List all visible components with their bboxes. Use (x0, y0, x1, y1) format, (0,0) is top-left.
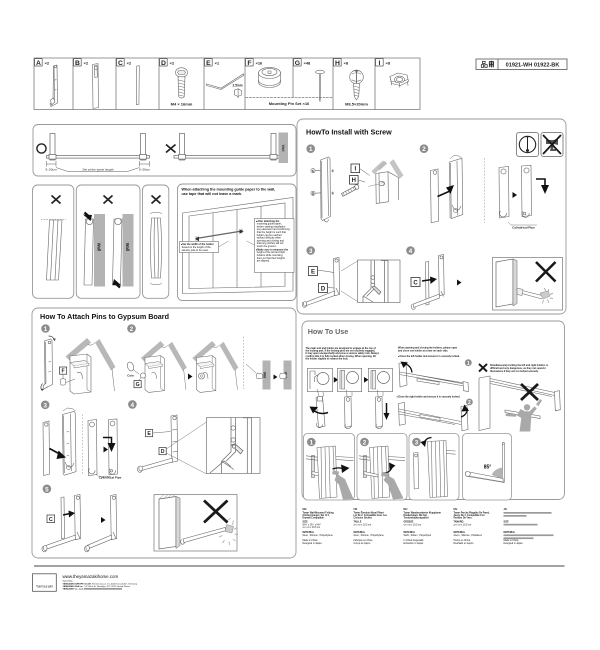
svg-text:MATERIAL: MATERIAL (354, 531, 366, 534)
svg-text:Steel , Silicone , Polyethylen: Steel , Silicone , Polyethylene (303, 534, 334, 537)
svg-text:ES/: ES/ (454, 509, 458, 511)
svg-text:01921-WH 01922-BK: 01921-WH 01922-BK (506, 63, 560, 69)
svg-text:www.theyamazakihome.com: www.theyamazakihome.com (63, 574, 119, 579)
svg-text:HowTo Install with Screw: HowTo Install with Screw (306, 128, 392, 137)
svg-text:Tower Wandmontierter Klappbare: Tower Wandmontierter Klappbarer (404, 511, 442, 514)
svg-text:2: 2 (422, 146, 426, 153)
svg-text:MATERIAL: MATERIAL (504, 531, 516, 534)
svg-text:×16: ×16 (256, 60, 264, 65)
svg-text:C: C (49, 517, 53, 523)
svg-text:C: C (118, 60, 123, 67)
svg-text:JA/: JA/ (504, 508, 508, 511)
svg-text:use tape that will not leave a: use tape that will not leave a mark. (182, 192, 243, 196)
svg-text:Designed in Japan.: Designed in Japan. (504, 543, 524, 545)
svg-text:×2: ×2 (127, 60, 132, 65)
svg-text:How To Attach Pins to Gypsum B: How To Attach Pins to Gypsum Board (40, 312, 169, 321)
svg-text:Paneles De Yeso: Paneles De Yeso (454, 518, 473, 520)
svg-text:D: D (161, 60, 166, 67)
svg-text:×8: ×8 (386, 60, 391, 65)
svg-text:C: C (413, 281, 418, 287)
svg-text:Cylindrical Pipe: Cylindrical Pipe (512, 226, 535, 230)
svg-text:1: 1 (44, 326, 48, 333)
svg-text:M3.5×20mm: M3.5×20mm (345, 102, 368, 107)
svg-text:G: G (295, 60, 300, 67)
svg-text:and close one holder at a time: and close one holder at a time on each s… (398, 349, 448, 352)
svg-text:FR/: FR/ (354, 509, 358, 511)
svg-text:E: E (147, 431, 151, 437)
svg-text:E: E (311, 270, 315, 276)
svg-text:×2: ×2 (170, 60, 175, 65)
svg-text:×2: ×2 (45, 60, 50, 65)
svg-text:Conçu au Japon.: Conçu au Japon. (354, 543, 372, 545)
svg-text:YAMAZAKI USA Inc. / 47 West St: YAMAZAKI USA Inc. / 47 West St. Brooklyn… (63, 585, 131, 588)
svg-text:Drywall Compatible: Drywall Compatible (303, 517, 325, 520)
svg-text:I: I (378, 60, 380, 67)
svg-text:F: F (247, 60, 251, 67)
svg-text:TAMAÑO: TAMAÑO (454, 521, 464, 524)
svg-text:In China hergestellt.: In China hergestellt. (404, 539, 425, 542)
svg-text:Trockenbaukompatibel: Trockenbaukompatibel (404, 517, 429, 520)
svg-text:Diseñado en Japón.: Diseñado en Japón. (454, 542, 475, 545)
svg-text:E: E (206, 60, 211, 67)
svg-text:YAMAZAKI Co., Ltd. /: YAMAZAKI Co., Ltd. / (63, 588, 85, 591)
svg-text:H: H (335, 60, 340, 67)
svg-text:DE/: DE/ (404, 509, 408, 511)
svg-text:MATERIAL: MATERIAL (303, 531, 315, 534)
svg-text:YAMAZAKI EUROPE GmbH, Fennerst: YAMAZAKI EUROPE GmbH, Fennerstrasse. 10,… (63, 582, 138, 585)
svg-text:SIZE: SIZE (303, 522, 309, 524)
svg-text:Wall: Wall (97, 243, 102, 251)
svg-text:are aligned.: are aligned. (257, 260, 270, 263)
svg-text:MATERIAL: MATERIAL (404, 531, 416, 534)
svg-text:H: H (352, 178, 356, 184)
svg-text:5: 5 (45, 486, 49, 493)
svg-text:A: A (36, 60, 41, 67)
svg-text:2: 2 (468, 400, 471, 406)
svg-text:3: 3 (415, 440, 419, 447)
svg-text:Acier , Silicone , Polyéthylèn: Acier , Silicone , Polyéthylène (354, 534, 385, 537)
svg-text:Stahl , Silikon , Polyethylen: Stahl , Silikon , Polyethylen (404, 534, 432, 537)
svg-text:4: 4 (409, 248, 413, 255)
svg-text:D: D (321, 287, 326, 293)
svg-text:×2: ×2 (84, 60, 89, 65)
svg-text:3: 3 (309, 248, 313, 255)
svg-text:Wall: Wall (281, 145, 285, 152)
svg-text:2: 2 (363, 440, 367, 447)
svg-text:Lot De 2, Compatible Avec Les: Lot De 2, Compatible Avec Les (354, 514, 388, 517)
svg-text:Yamazaki: Yamazaki (36, 585, 53, 589)
svg-text:Tower Wall-Mounted Folding: Tower Wall-Mounted Folding (303, 511, 335, 514)
svg-text:laundry pole to be used.: laundry pole to be used. (182, 249, 209, 252)
svg-text:When attaching the mounting gu: When attaching the mounting guide paper … (182, 188, 276, 192)
svg-text:xx x xx x 10.5 cm: xx x xx x 10.5 cm (354, 524, 372, 526)
svg-text:Clothes Hanger, Set of 2,: Clothes Hanger, Set of 2, (303, 514, 330, 517)
svg-text:EN/: EN/ (303, 509, 307, 511)
svg-text:●Close the right holder and en: ●Close the right holder and ensure it is… (397, 395, 461, 398)
svg-text:xx x xx x 10.5 cm: xx x xx x 10.5 cm (454, 524, 472, 526)
svg-text:xx x xx x 10.5 cm: xx x xx x 10.5 cm (303, 527, 321, 529)
svg-text:1: 1 (309, 146, 313, 153)
svg-text:xx x xx x 10.5 cm: xx x xx x 10.5 cm (404, 524, 422, 526)
svg-text:M4 × 16mm: M4 × 16mm (171, 102, 193, 107)
svg-text:B: B (75, 60, 80, 67)
svg-text:Cylindrical Pipe: Cylindrical Pipe (99, 475, 122, 479)
svg-text:SIZE: SIZE (504, 522, 510, 524)
svg-text:Wall: Wall (125, 243, 130, 251)
svg-text:5~20cm: 5~20cm (139, 168, 151, 172)
svg-text:Imported by: Imported by (63, 579, 73, 582)
svg-text:4: 4 (131, 402, 135, 409)
svg-text:Fabriqué en Chine,: Fabriqué en Chine, (354, 539, 374, 542)
svg-text:Coin: Coin (127, 374, 134, 378)
svg-text:2.5mm: 2.5mm (232, 84, 242, 88)
svg-text:Acero , Silicona , Polietileno: Acero , Silicona , Polietileno (454, 534, 483, 537)
svg-text:Juego De 2, Compatible Con: Juego De 2, Compatible Con (454, 514, 486, 517)
svg-text:Set at the same length: Set at the same length (83, 167, 114, 171)
svg-text:85°: 85° (484, 465, 492, 471)
svg-text:Entworfen in Japan.: Entworfen in Japan. (404, 542, 425, 545)
svg-text:Tower Étendoir Mural Pliant: Tower Étendoir Mural Pliant (354, 511, 384, 514)
svg-text:×1: ×1 (215, 60, 220, 65)
svg-text:Wall: Wall (263, 372, 267, 379)
svg-text:Kleiderbügel, 2Er-Set,: Kleiderbügel, 2Er-Set, (404, 514, 428, 517)
svg-text:TAILLE: TAILLE (354, 521, 362, 524)
svg-text:GRÖSSE: GRÖSSE (404, 521, 414, 524)
svg-text:1: 1 (310, 440, 314, 447)
svg-text:3: 3 (43, 402, 47, 409)
svg-text:G: G (136, 382, 140, 388)
svg-text:5~20cm: 5~20cm (45, 168, 57, 172)
svg-text:MATERIAL: MATERIAL (454, 531, 466, 534)
svg-text:×48: ×48 (304, 60, 312, 65)
svg-text:themselves if they are not loc: themselves if they are not locked secure… (490, 370, 539, 373)
svg-text:How To Use: How To Use (308, 327, 349, 336)
svg-text:×8: ×8 (344, 60, 349, 65)
svg-text:the holder slightly to release: the holder slightly to release the lock. (306, 358, 349, 361)
svg-text:●Close the left holder and ens: ●Close the left holder and ensure it is … (398, 355, 460, 358)
svg-text:Mounting Pin Set ×16: Mounting Pin Set ×16 (269, 101, 310, 106)
svg-text:1: 1 (467, 361, 470, 367)
svg-text:F: F (62, 369, 65, 375)
svg-text:2: 2 (130, 326, 134, 333)
svg-text:D: D (161, 449, 165, 455)
svg-text:Designed in Japan.: Designed in Japan. (303, 543, 323, 545)
svg-text:Cloisons Sèches: Cloisons Sèches (354, 518, 373, 520)
